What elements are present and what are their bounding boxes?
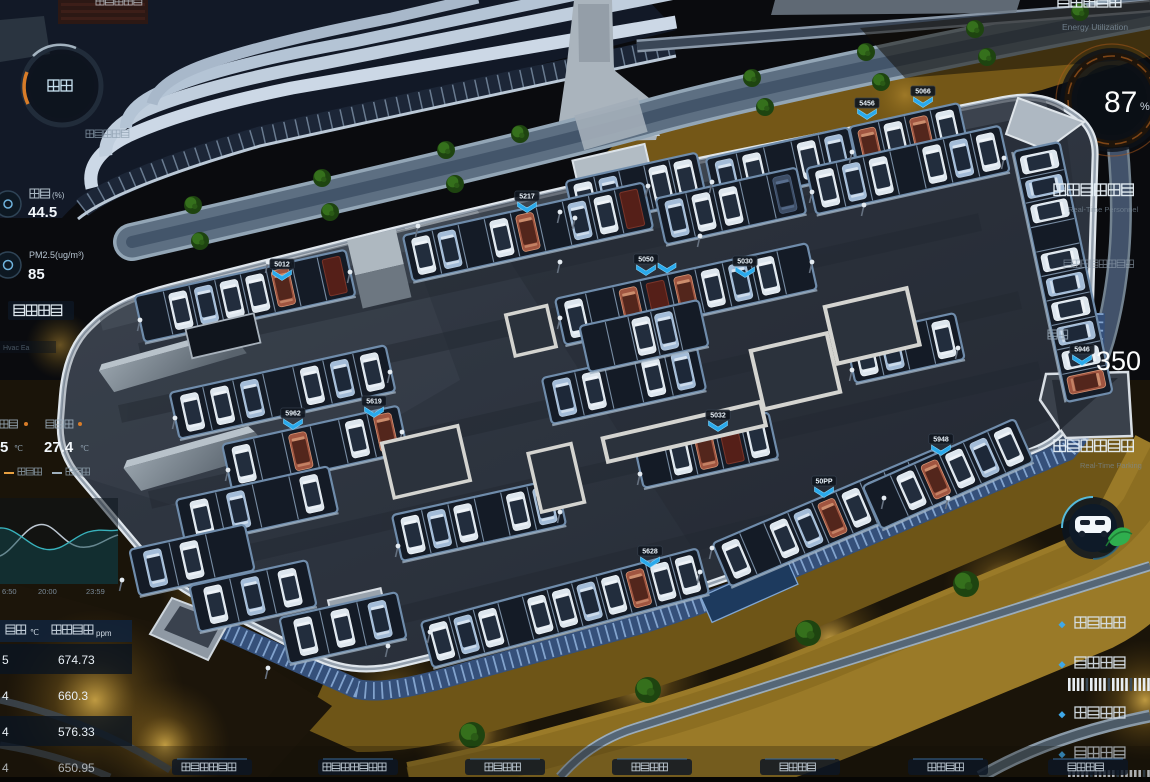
svg-text:5948: 5948 <box>933 437 949 444</box>
svg-text:5619: 5619 <box>366 399 382 406</box>
svg-text:5217: 5217 <box>519 194 535 201</box>
svg-text:4: 4 <box>2 725 9 739</box>
svg-text:Hvac Ea: Hvac Ea <box>3 345 30 352</box>
svg-text:5: 5 <box>2 653 9 667</box>
svg-text:Energy Utilization: Energy Utilization <box>1062 22 1128 32</box>
svg-text:44.5: 44.5 <box>28 204 57 221</box>
svg-text:5: 5 <box>0 439 8 456</box>
svg-text:85: 85 <box>28 266 45 283</box>
svg-text:4: 4 <box>2 689 9 703</box>
svg-text:℃: ℃ <box>30 628 39 637</box>
svg-text:PM2.5(ug/m³): PM2.5(ug/m³) <box>29 250 84 260</box>
svg-text:5030: 5030 <box>737 259 753 266</box>
svg-text:23:59: 23:59 <box>86 587 105 596</box>
svg-text:660.3: 660.3 <box>58 689 88 703</box>
svg-text:ppm: ppm <box>96 629 112 638</box>
svg-text:5946: 5946 <box>1074 347 1090 354</box>
svg-text:5628: 5628 <box>642 549 658 556</box>
svg-text:Real-Time Personnel: Real-Time Personnel <box>1068 205 1138 214</box>
svg-text:℃: ℃ <box>14 444 23 453</box>
svg-text:87: 87 <box>1104 86 1137 119</box>
svg-text:350: 350 <box>1096 346 1141 376</box>
svg-text:℃: ℃ <box>80 444 89 453</box>
svg-text:%: % <box>1140 101 1150 113</box>
svg-text:50PP: 50PP <box>815 479 832 486</box>
svg-text:Real-Time Parking: Real-Time Parking <box>1080 461 1142 470</box>
svg-text:5962: 5962 <box>285 411 301 418</box>
svg-text:20:00: 20:00 <box>38 587 57 596</box>
svg-text:5456: 5456 <box>859 101 875 108</box>
svg-text:5050: 5050 <box>638 257 654 264</box>
svg-text:6:50: 6:50 <box>2 587 17 596</box>
svg-text:5066: 5066 <box>915 89 931 96</box>
svg-text:(%): (%) <box>52 191 65 200</box>
svg-text:5012: 5012 <box>274 262 290 269</box>
svg-text:576.33: 576.33 <box>58 725 95 739</box>
svg-text:5032: 5032 <box>710 413 726 420</box>
svg-text:674.73: 674.73 <box>58 653 95 667</box>
svg-text:27.4: 27.4 <box>44 439 74 456</box>
